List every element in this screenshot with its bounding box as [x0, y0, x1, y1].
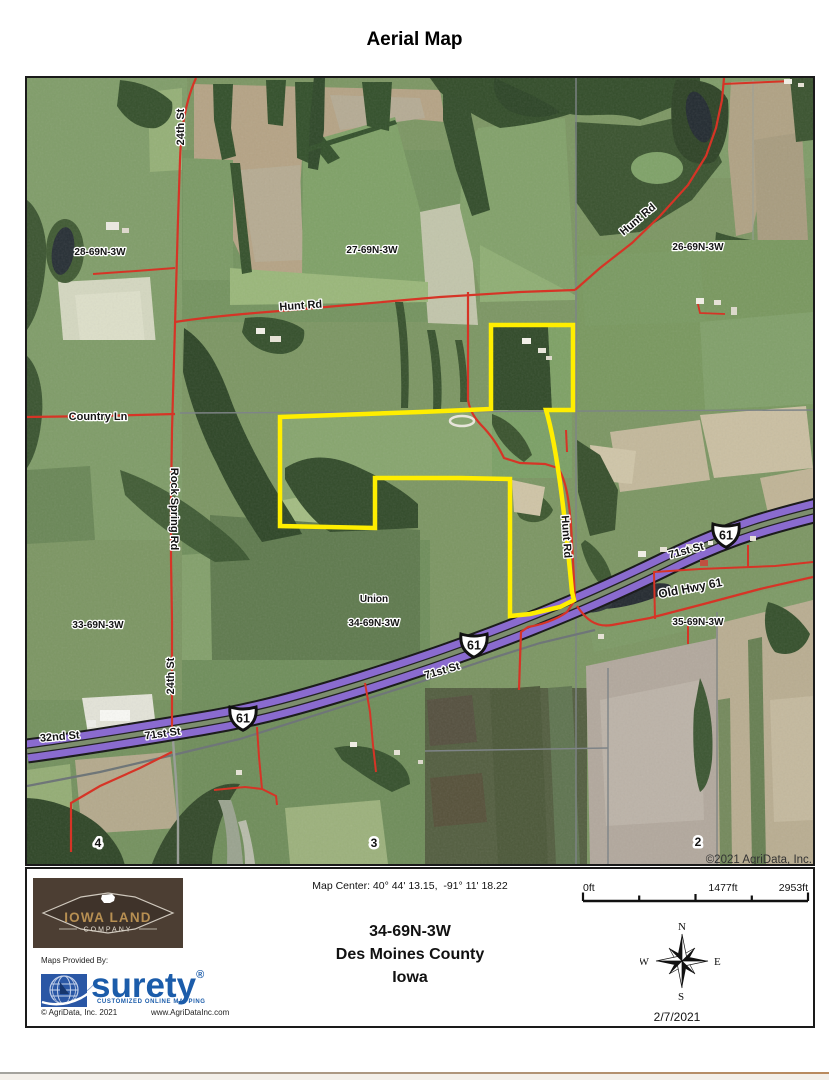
svg-text:S: S: [678, 991, 684, 1003]
svg-text:4: 4: [95, 836, 102, 850]
svg-text:N: N: [678, 921, 686, 933]
svg-text:3: 3: [371, 836, 378, 850]
svg-text:2953ft: 2953ft: [779, 882, 808, 894]
svg-text:61: 61: [467, 639, 481, 653]
svg-text:24th St: 24th St: [165, 657, 177, 694]
svg-text:COMPANY: COMPANY: [84, 927, 133, 934]
svg-text:34-69N-3W: 34-69N-3W: [348, 618, 400, 629]
svg-text:©2021 AgriData, Inc.: ©2021 AgriData, Inc.: [706, 854, 812, 864]
svg-text:28-69N-3W: 28-69N-3W: [74, 247, 126, 258]
svg-text:35-69N-3W: 35-69N-3W: [672, 617, 724, 628]
svg-text:61: 61: [719, 529, 733, 543]
svg-text:26-69N-3W: 26-69N-3W: [672, 242, 724, 253]
svg-text:IOWA LAND: IOWA LAND: [64, 910, 152, 925]
svg-text:61: 61: [236, 712, 250, 726]
svg-text:1477ft: 1477ft: [708, 882, 737, 894]
svg-text:24th St: 24th St: [175, 108, 187, 145]
svg-text:E: E: [714, 956, 721, 968]
svg-text:Country Ln: Country Ln: [69, 411, 128, 423]
svg-text:0ft: 0ft: [583, 882, 595, 894]
svg-text:33-69N-3W: 33-69N-3W: [72, 620, 124, 631]
svg-text:2: 2: [695, 835, 702, 849]
svg-text:27-69N-3W: 27-69N-3W: [346, 245, 398, 256]
svg-text:W: W: [640, 956, 650, 968]
svg-text:Union: Union: [360, 594, 388, 605]
svg-text:Rock Spring Rd: Rock Spring Rd: [168, 468, 180, 551]
